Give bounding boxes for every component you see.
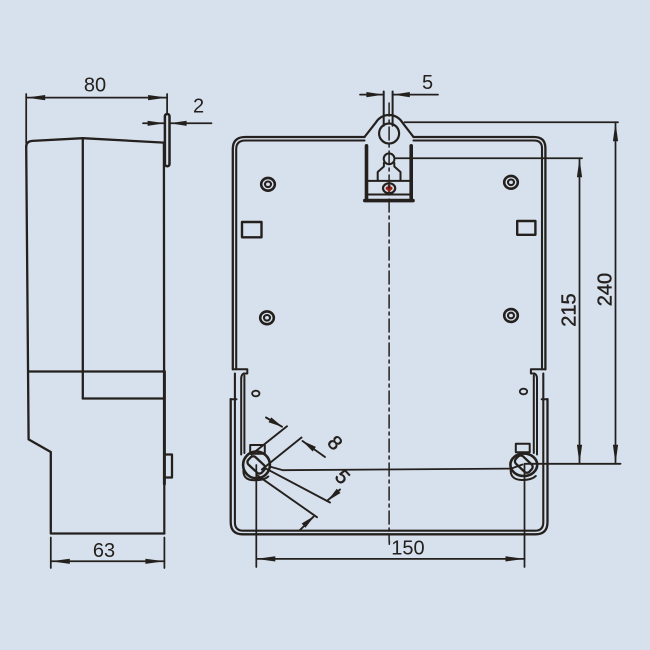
svg-text:80: 80: [84, 75, 106, 97]
svg-text:2: 2: [193, 96, 204, 118]
svg-text:240: 240: [595, 273, 617, 306]
svg-text:215: 215: [559, 293, 581, 326]
svg-text:63: 63: [93, 540, 115, 562]
svg-text:5: 5: [422, 72, 433, 94]
svg-text:'150: '150: [387, 538, 424, 560]
